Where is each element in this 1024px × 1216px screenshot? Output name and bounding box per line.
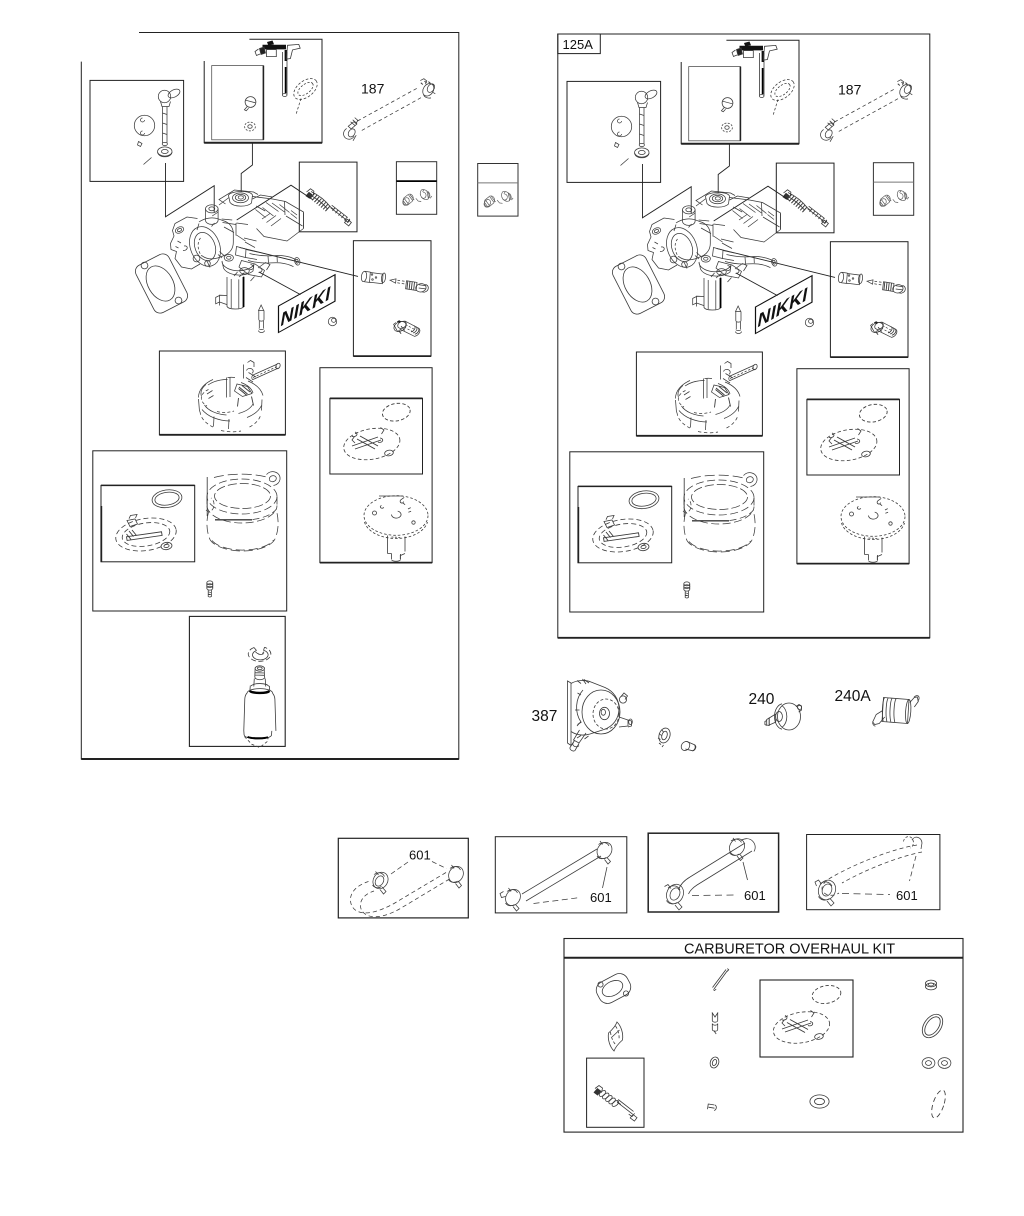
svg-text:601: 601 xyxy=(409,848,431,863)
svg-text:240: 240 xyxy=(749,691,775,708)
svg-text:240A: 240A xyxy=(835,688,872,705)
svg-text:601: 601 xyxy=(744,888,766,903)
svg-text:125A: 125A xyxy=(563,37,594,52)
svg-text:601: 601 xyxy=(896,888,918,903)
svg-text:601: 601 xyxy=(590,890,612,905)
svg-text:387: 387 xyxy=(532,708,558,725)
svg-text:CARBURETOR OVERHAUL KIT: CARBURETOR OVERHAUL KIT xyxy=(684,942,895,958)
